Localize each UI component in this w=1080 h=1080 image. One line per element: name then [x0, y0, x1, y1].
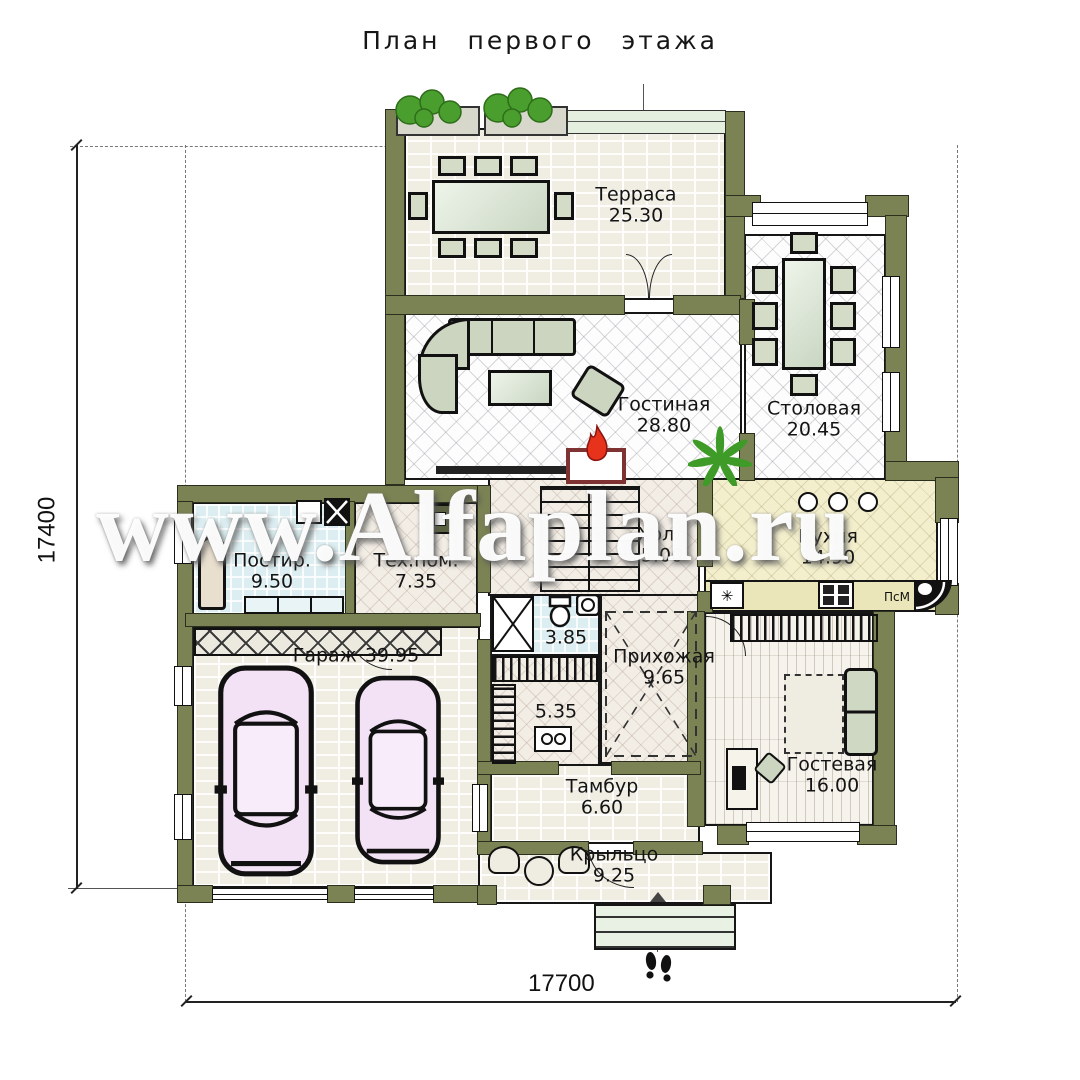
wall [718, 826, 748, 844]
guest-sofa [844, 668, 878, 756]
car-icon [214, 664, 318, 880]
computer [732, 766, 746, 790]
wall [178, 886, 212, 902]
room-area: 16.00 [805, 776, 859, 797]
ironing-board [198, 536, 226, 610]
window [940, 518, 958, 586]
bed-outline [784, 674, 844, 754]
label-porch: Крыльцо 9.25 [570, 845, 658, 888]
room-area: 14.90 [801, 548, 855, 569]
staircase [540, 486, 640, 592]
window [174, 794, 192, 840]
toilet-icon [546, 596, 574, 628]
porch-chair [488, 846, 520, 874]
label-guest: Гостевая 16.00 [787, 755, 878, 798]
dimension-line-left [76, 145, 78, 889]
dining-table [782, 258, 826, 370]
stair-rail [588, 486, 590, 592]
tv-console [436, 466, 568, 474]
chair [408, 192, 428, 220]
room-area: 25.30 [609, 206, 663, 227]
dimension-line-bottom [186, 1001, 956, 1003]
sauna-bench-side [492, 684, 516, 764]
room-area: 28.80 [637, 416, 691, 437]
chair [830, 302, 856, 330]
bar-stool [858, 492, 878, 512]
room-name: Кухня [798, 527, 858, 548]
label-dining: Столовая 20.45 [767, 399, 861, 442]
chair [790, 374, 818, 396]
room-area: 20.45 [787, 420, 841, 441]
footprints-icon [640, 950, 676, 986]
chair [474, 238, 502, 258]
chair [752, 302, 778, 330]
freezer-icon: ✳ [710, 582, 744, 609]
room-area: 9.50 [251, 572, 293, 593]
room-name: Столовая [767, 399, 861, 420]
wall [478, 762, 558, 774]
wall [186, 614, 480, 626]
sauna-stove-burners-icon [534, 726, 572, 752]
dimension-label-bottom: 17700 [528, 970, 595, 998]
chair [830, 338, 856, 366]
wall [858, 826, 896, 844]
bar-stool [798, 492, 818, 512]
dishwasher-label: ПсМ [884, 590, 910, 604]
room-name: Тамбур [566, 777, 639, 798]
room-name: Прихожая [613, 647, 715, 668]
label-kitchen: Кухня 14.90 [798, 527, 858, 570]
room-name: Крыльцо [570, 845, 658, 866]
guest-wardrobe [730, 614, 878, 642]
label-living: Гостиная 28.80 [618, 395, 711, 438]
window [174, 516, 192, 564]
stove-icon [818, 581, 854, 609]
chair [510, 156, 538, 176]
label-laundry: Постир. 9.50 [233, 551, 311, 594]
room-area: 3.85 [545, 627, 587, 648]
window [174, 666, 192, 706]
wall [866, 196, 908, 216]
chair [510, 238, 538, 258]
wall [704, 886, 730, 904]
room-name: Тех.пом. [374, 551, 459, 572]
room-area: 9.65 [643, 668, 685, 689]
window [746, 822, 860, 842]
label-sauna: 5.35 [535, 701, 577, 722]
plants-icon [388, 80, 580, 132]
chair [554, 192, 574, 220]
label-entry: Прихожая 9.65 [613, 647, 715, 690]
chair [438, 156, 466, 176]
car-icon [352, 662, 444, 880]
washing-machine [296, 500, 322, 524]
room-area: 6.60 [581, 798, 623, 819]
garage-door [354, 888, 434, 900]
floor-plan: План первого этажа 17400 17700 [0, 0, 1080, 1080]
wall [674, 296, 740, 314]
dimension-label-side: 17400 [33, 497, 61, 564]
wall [478, 886, 496, 904]
window [472, 784, 488, 832]
label-bathroom: 3.85 [545, 627, 587, 648]
sink-icon [576, 594, 600, 616]
label-tambour: Тамбур 6.60 [566, 777, 639, 820]
chair [438, 238, 466, 258]
wall [386, 296, 624, 314]
chair [752, 338, 778, 366]
flame-icon [580, 424, 614, 468]
room-area: 5.00 [641, 546, 683, 567]
label-terrace: Терраса 25.30 [595, 185, 676, 228]
room-name: Гостиная [618, 395, 711, 416]
room-name: Терраса [595, 185, 676, 206]
room-area: 7.35 [395, 572, 437, 593]
label-garage: Гараж 39.95 [293, 645, 419, 666]
label-tech: Тех.пом. 7.35 [374, 551, 459, 594]
room-area: 39.95 [365, 645, 419, 666]
coffee-table [488, 370, 552, 406]
chair [830, 266, 856, 294]
wall [698, 480, 712, 566]
room-area: 9.25 [593, 866, 635, 887]
room-area: 5.35 [535, 701, 577, 722]
window [882, 276, 900, 348]
entrance-arrow-icon [650, 892, 666, 902]
porch-table [524, 856, 554, 886]
corner-sink-icon [912, 578, 954, 614]
room-name: Гараж [293, 645, 357, 666]
entrance-steps [594, 904, 736, 950]
chair [474, 156, 502, 176]
window [752, 202, 868, 226]
room-name: Холл [638, 525, 687, 546]
window [882, 372, 900, 432]
chair [752, 266, 778, 294]
wall [478, 486, 490, 592]
wall [612, 762, 700, 774]
chair [790, 232, 818, 254]
label-hall: Холл 5.00 [638, 525, 687, 568]
wall [936, 478, 958, 522]
terrace-table [432, 180, 550, 234]
extension-line [68, 888, 186, 889]
wall [328, 886, 354, 902]
dryer-x-icon [324, 498, 350, 526]
bar-stool [828, 492, 848, 512]
laundry-counter [244, 596, 344, 614]
terrace-deck-edge [558, 110, 726, 134]
wardrobe-x-icon [492, 596, 534, 652]
room-name: Постир. [233, 551, 311, 572]
room-name: Гостевая [787, 755, 878, 776]
page-title: План первого этажа [0, 26, 1080, 55]
boiler-panel [434, 512, 446, 526]
sauna-bench [492, 656, 598, 682]
garage-door [212, 888, 328, 900]
